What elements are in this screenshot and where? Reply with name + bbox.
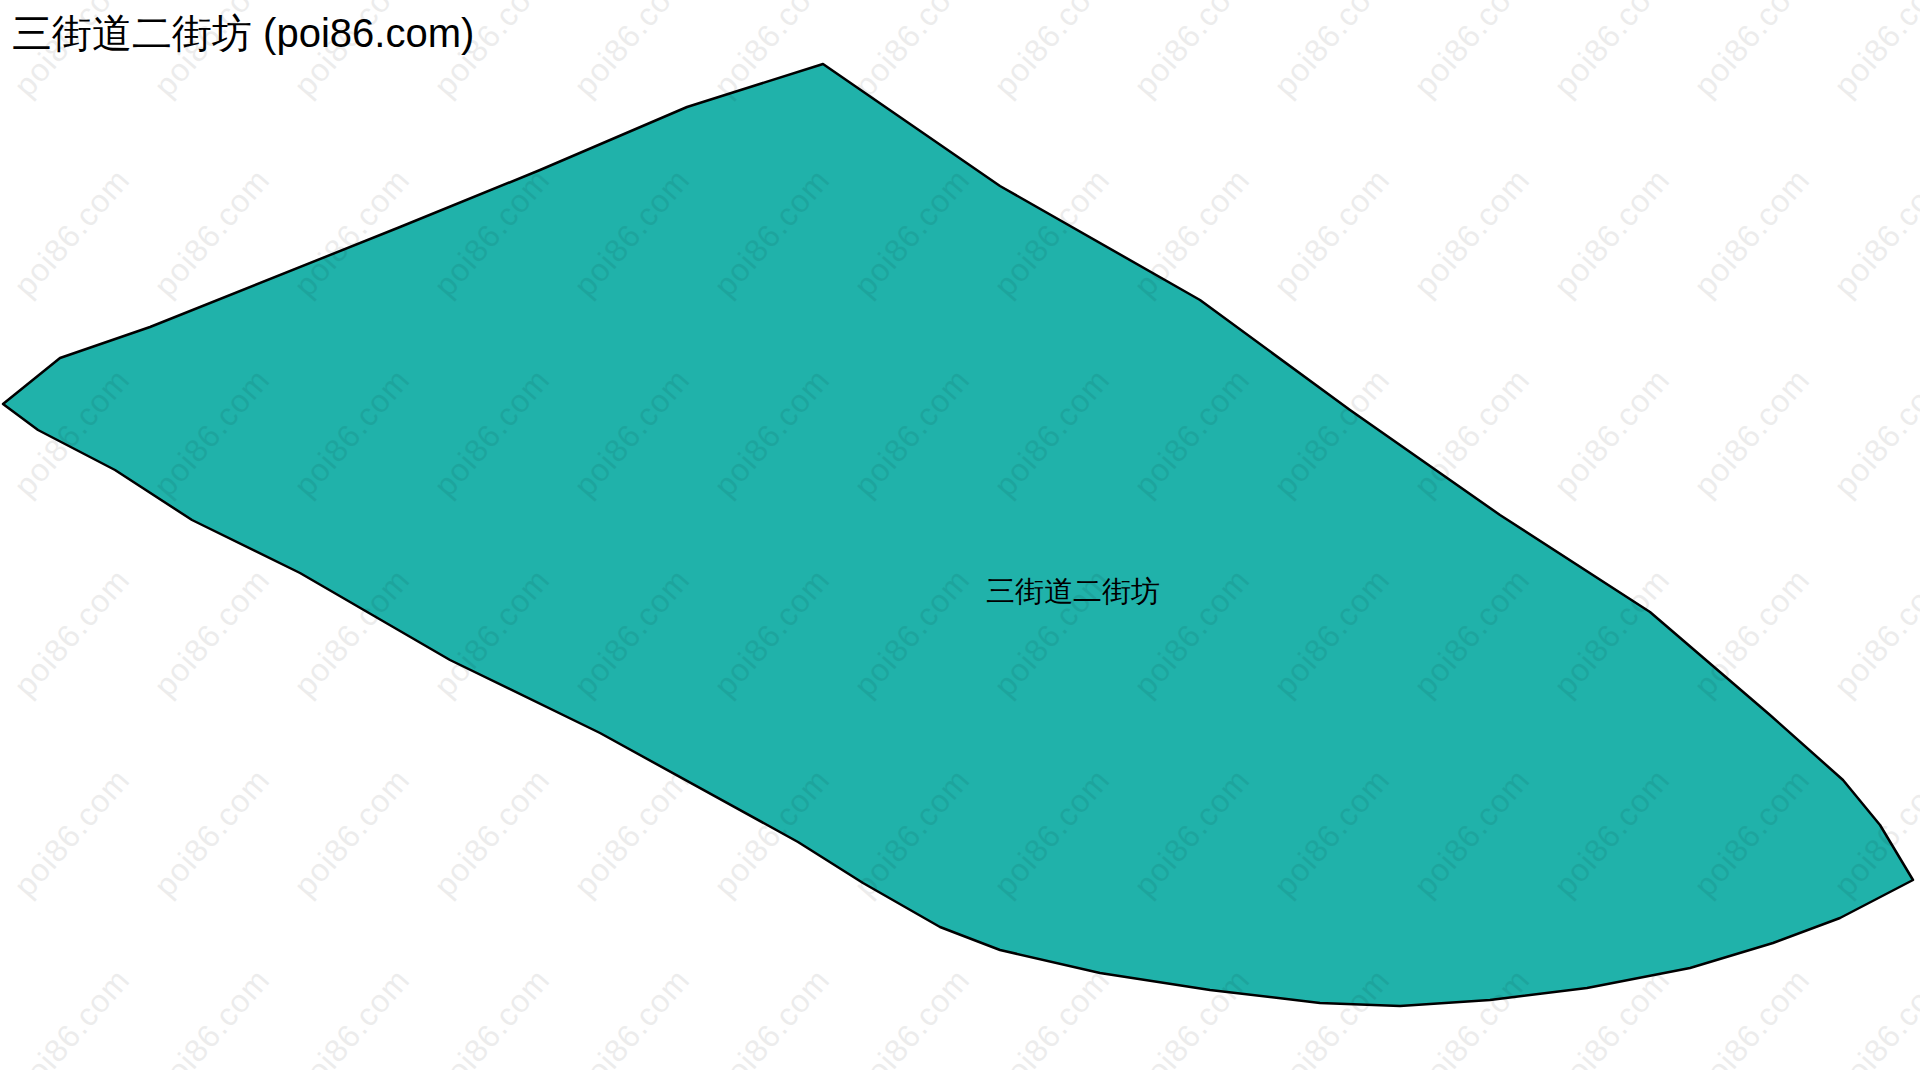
page-title: 三街道二街坊 (poi86.com) — [12, 6, 474, 61]
region-label: 三街道二街坊 — [986, 572, 1160, 612]
map-canvas: poi86.compoi86.compoi86.compoi86.compoi8… — [0, 0, 1920, 1070]
region-boundary-svg — [0, 0, 1920, 1070]
region-polygon — [3, 64, 1913, 1006]
